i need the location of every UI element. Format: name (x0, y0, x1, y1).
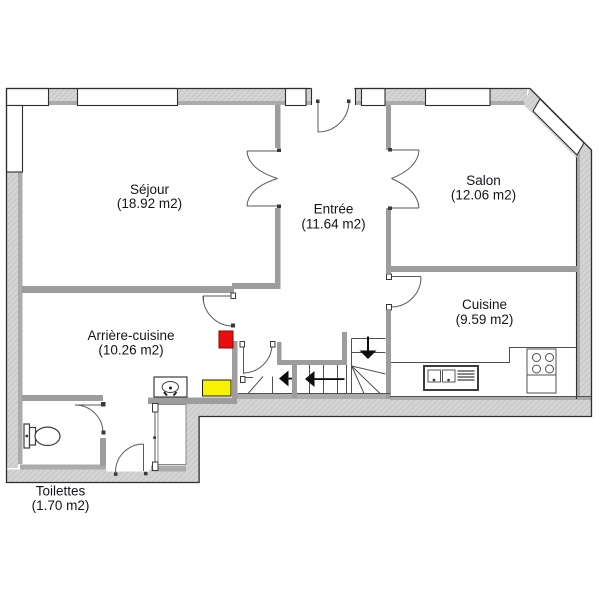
svg-text:Salon: Salon (466, 173, 501, 188)
svg-text:Toilettes: Toilettes (36, 484, 86, 499)
svg-text:(18.92 m2): (18.92 m2) (117, 196, 182, 211)
svg-text:(1.70 m2): (1.70 m2) (32, 498, 90, 513)
svg-text:(12.06 m2): (12.06 m2) (451, 188, 516, 203)
svg-text:(9.59 m2): (9.59 m2) (456, 312, 514, 327)
svg-text:Arrière-cuisine: Arrière-cuisine (87, 328, 174, 343)
svg-text:Entrée: Entrée (314, 202, 354, 217)
svg-text:Séjour: Séjour (130, 182, 170, 197)
svg-text:Cuisine: Cuisine (462, 297, 507, 312)
svg-text:(11.64 m2): (11.64 m2) (301, 217, 365, 232)
svg-text:(10.26 m2): (10.26 m2) (98, 343, 163, 358)
